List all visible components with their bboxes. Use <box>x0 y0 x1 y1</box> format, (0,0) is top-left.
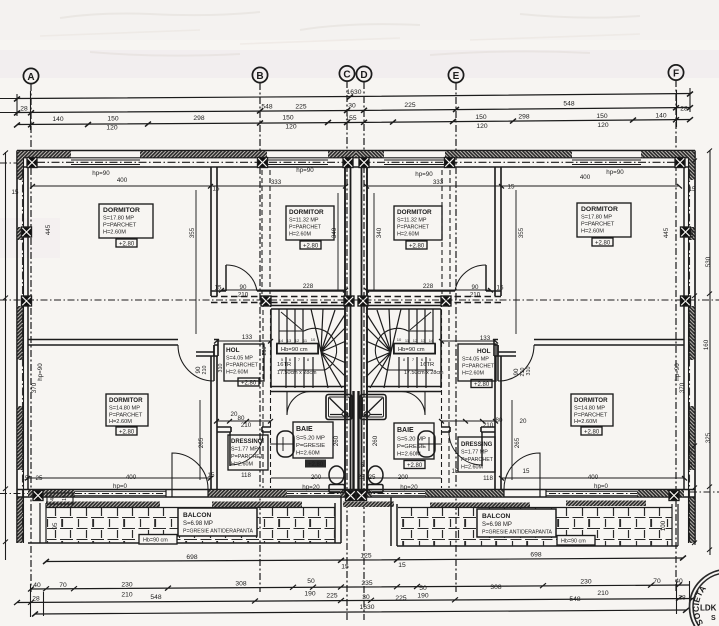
svg-text:P=PARCHET: P=PARCHET <box>574 413 608 419</box>
svg-text:+2.80: +2.80 <box>584 430 600 436</box>
svg-text:S=5.20 MP: S=5.20 MP <box>296 436 325 442</box>
svg-text:25: 25 <box>688 449 694 455</box>
svg-text:C: C <box>343 70 350 81</box>
svg-text:H=2.60M: H=2.60M <box>103 230 126 236</box>
svg-text:P=PARCHET: P=PARCHET <box>231 454 264 460</box>
svg-text:BALCON: BALCON <box>183 512 211 519</box>
svg-text:210: 210 <box>597 590 608 597</box>
svg-text:P=GRESIE ANTIDERAPANTA: P=GRESIE ANTIDERAPANTA <box>482 530 553 536</box>
svg-text:50: 50 <box>419 585 427 592</box>
svg-text:S=17.80 MP: S=17.80 MP <box>581 215 612 221</box>
svg-text:BAIE: BAIE <box>296 426 313 433</box>
svg-text:400: 400 <box>126 474 137 481</box>
svg-text:225: 225 <box>295 104 306 111</box>
svg-text:H=2.60M: H=2.60M <box>574 419 597 425</box>
svg-text:DORMITOR: DORMITOR <box>581 206 618 213</box>
svg-text:hp=20: hp=20 <box>302 484 320 491</box>
svg-text:10: 10 <box>397 337 402 342</box>
svg-text:DRESSING: DRESSING <box>231 439 263 445</box>
svg-text:133: 133 <box>480 335 491 342</box>
svg-text:1630: 1630 <box>347 89 362 96</box>
svg-text:325: 325 <box>705 432 712 443</box>
svg-text:80: 80 <box>496 417 503 424</box>
svg-text:S=1.77 MP: S=1.77 MP <box>461 450 488 456</box>
svg-text:15: 15 <box>398 562 406 569</box>
svg-text:15: 15 <box>452 468 459 475</box>
svg-text:548: 548 <box>150 594 161 601</box>
svg-text:P=GRESIE: P=GRESIE <box>397 444 426 450</box>
svg-text:225: 225 <box>326 593 337 600</box>
svg-text:+2.80: +2.80 <box>409 244 425 250</box>
svg-text:hp=90: hp=90 <box>296 167 314 174</box>
svg-text:120: 120 <box>597 122 608 129</box>
svg-text:118: 118 <box>241 472 251 479</box>
svg-text:S=6.98 MP: S=6.98 MP <box>183 521 213 527</box>
svg-text:80: 80 <box>238 415 245 422</box>
svg-text:150: 150 <box>475 114 486 121</box>
svg-text:445: 445 <box>663 227 670 238</box>
svg-text:DORMITOR: DORMITOR <box>574 397 608 404</box>
svg-text:548: 548 <box>563 101 574 108</box>
svg-text:90: 90 <box>472 284 479 291</box>
svg-text:260: 260 <box>372 435 379 446</box>
svg-text:333: 333 <box>433 179 444 186</box>
svg-text:P=GRESIE: P=GRESIE <box>296 443 325 449</box>
svg-text:308: 308 <box>490 584 501 591</box>
svg-text:530: 530 <box>705 256 712 267</box>
svg-text:S=6.98 MP: S=6.98 MP <box>482 522 512 528</box>
svg-text:400: 400 <box>588 474 599 481</box>
svg-text:P=PARCHET: P=PARCHET <box>109 413 143 419</box>
svg-text:260: 260 <box>333 435 340 446</box>
svg-text:5: 5 <box>360 462 364 469</box>
svg-text:LDK S: LDK S <box>700 604 719 613</box>
svg-text:14: 14 <box>279 338 284 343</box>
svg-text:+2.80: +2.80 <box>407 463 423 469</box>
svg-text:400: 400 <box>580 174 591 181</box>
svg-text:S=14.80 MP: S=14.80 MP <box>109 406 140 412</box>
svg-text:140: 140 <box>52 116 63 123</box>
svg-text:333: 333 <box>271 179 282 186</box>
svg-text:50: 50 <box>307 578 315 585</box>
svg-text:13: 13 <box>421 338 426 343</box>
svg-text:H=2.60M: H=2.60M <box>231 462 254 468</box>
svg-text:P=PARCHET: P=PARCHET <box>103 223 137 229</box>
svg-text:12: 12 <box>295 338 300 343</box>
svg-text:210: 210 <box>238 292 249 299</box>
svg-text:15: 15 <box>213 186 220 193</box>
svg-text:698: 698 <box>186 554 197 561</box>
svg-text:DORMITOR: DORMITOR <box>397 209 432 216</box>
svg-text:hp=90: hp=90 <box>37 363 44 381</box>
svg-text:230: 230 <box>121 581 132 588</box>
svg-text:Hb=90 cm: Hb=90 cm <box>561 539 586 545</box>
svg-text:H=2.60M: H=2.60M <box>109 419 132 425</box>
svg-text:100: 100 <box>660 520 667 531</box>
svg-text:25: 25 <box>369 474 376 481</box>
svg-text:210: 210 <box>241 422 252 429</box>
svg-text:P=PARCHET: P=PARCHET <box>289 225 322 231</box>
svg-text:H=2.60M: H=2.60M <box>296 451 320 457</box>
svg-text:13: 13 <box>287 338 292 343</box>
svg-text:+2.80: +2.80 <box>119 430 135 436</box>
svg-text:200: 200 <box>311 474 322 481</box>
svg-text:90: 90 <box>240 284 247 291</box>
svg-text:DORMITOR: DORMITOR <box>109 397 143 404</box>
svg-text:160: 160 <box>703 339 710 350</box>
svg-text:14: 14 <box>429 338 434 343</box>
svg-text:P=PARCHET: P=PARCHET <box>581 222 615 228</box>
svg-text:HOL: HOL <box>477 348 491 355</box>
svg-text:210: 210 <box>262 347 268 356</box>
svg-text:+2.80: +2.80 <box>303 244 319 250</box>
svg-text:210: 210 <box>470 292 481 299</box>
svg-text:228: 228 <box>423 283 434 290</box>
svg-text:HOL: HOL <box>226 347 240 354</box>
svg-text:DORMITOR: DORMITOR <box>103 207 140 214</box>
svg-text:15: 15 <box>497 285 504 292</box>
svg-text:DRESSING: DRESSING <box>461 442 493 448</box>
svg-text:28: 28 <box>680 106 688 113</box>
svg-text:16TR: 16TR <box>420 362 434 368</box>
svg-text:P=PARCHET: P=PARCHET <box>226 363 259 369</box>
svg-text:90: 90 <box>513 368 520 375</box>
svg-text:28: 28 <box>32 596 40 603</box>
svg-text:15: 15 <box>12 189 19 196</box>
svg-text:S=5.20 MP: S=5.20 MP <box>397 437 426 443</box>
svg-text:298: 298 <box>518 114 529 121</box>
svg-text:1630: 1630 <box>360 604 375 611</box>
svg-text:15: 15 <box>508 184 515 191</box>
svg-text:445: 445 <box>45 224 52 235</box>
svg-text:150: 150 <box>596 113 607 120</box>
svg-text:95: 95 <box>52 522 59 529</box>
svg-text:hp=90: hp=90 <box>415 171 433 178</box>
svg-text:H=2.60M: H=2.60M <box>462 371 485 377</box>
svg-text:BALCON: BALCON <box>482 513 510 520</box>
svg-text:H=2.60M: H=2.60M <box>397 452 421 458</box>
svg-text:Hb=90 cm: Hb=90 cm <box>398 347 425 353</box>
svg-text:H=2.60M: H=2.60M <box>461 465 484 471</box>
svg-text:+2.80: +2.80 <box>308 462 324 468</box>
svg-text:S=14.80 MP: S=14.80 MP <box>574 406 605 412</box>
svg-text:28: 28 <box>678 595 686 602</box>
svg-text:225: 225 <box>395 595 406 602</box>
svg-text:15: 15 <box>523 468 530 475</box>
svg-text:225: 225 <box>404 102 415 109</box>
svg-text:125: 125 <box>360 553 371 560</box>
svg-text:S=4.05 MP: S=4.05 MP <box>462 357 489 363</box>
svg-text:hp=90: hp=90 <box>92 170 110 177</box>
svg-text:120: 120 <box>285 124 296 131</box>
svg-text:H=2.60M: H=2.60M <box>226 370 249 376</box>
svg-text:70: 70 <box>653 578 661 585</box>
svg-text:F: F <box>673 69 679 80</box>
svg-text:40: 40 <box>50 495 56 501</box>
svg-text:+2.80: +2.80 <box>241 381 257 387</box>
svg-text:298: 298 <box>193 115 204 122</box>
svg-text:308: 308 <box>235 581 246 588</box>
svg-text:20: 20 <box>520 418 527 425</box>
svg-text:155: 155 <box>345 115 356 122</box>
svg-text:+2.80: +2.80 <box>119 242 135 248</box>
svg-text:S: S <box>711 615 716 622</box>
svg-text:P=PARCHET: P=PARCHET <box>397 225 430 231</box>
svg-text:200: 200 <box>398 474 409 481</box>
svg-text:370: 370 <box>679 382 686 393</box>
svg-text:120: 120 <box>106 125 117 132</box>
svg-text:Hb=90 cm: Hb=90 cm <box>281 347 308 353</box>
svg-text:340: 340 <box>331 227 338 238</box>
svg-text:H=2.60M: H=2.60M <box>289 232 312 238</box>
svg-text:228: 228 <box>303 283 314 290</box>
svg-text:265: 265 <box>514 437 521 448</box>
svg-text:S=17.80 MP: S=17.80 MP <box>103 216 134 222</box>
svg-text:15: 15 <box>341 564 349 571</box>
svg-text:698: 698 <box>530 552 541 559</box>
svg-text:25: 25 <box>358 474 365 481</box>
svg-text:10: 10 <box>311 337 316 342</box>
svg-text:370: 370 <box>31 382 38 393</box>
svg-text:30: 30 <box>348 103 356 110</box>
svg-text:40: 40 <box>33 582 41 589</box>
svg-text:S=4.05 MP: S=4.05 MP <box>226 356 253 362</box>
svg-text:310: 310 <box>218 364 224 373</box>
svg-text:hp=0: hp=0 <box>594 483 608 490</box>
svg-text:17.50cm x 28cm: 17.50cm x 28cm <box>277 370 317 376</box>
svg-text:15: 15 <box>688 462 694 468</box>
svg-text:17.50cm x 28cm: 17.50cm x 28cm <box>404 370 444 376</box>
svg-text:A: A <box>27 72 34 83</box>
svg-text:140: 140 <box>655 113 666 120</box>
svg-text:15: 15 <box>215 285 222 292</box>
svg-text:16TR: 16TR <box>277 362 291 368</box>
svg-text:210: 210 <box>121 591 132 598</box>
svg-text:15: 15 <box>208 472 215 479</box>
svg-text:B: B <box>256 71 263 82</box>
svg-text:340: 340 <box>376 227 383 238</box>
svg-text:210: 210 <box>483 422 494 429</box>
svg-text:H=2.60M: H=2.60M <box>581 229 604 235</box>
svg-text:E: E <box>453 71 460 82</box>
svg-text:P=PARCHET: P=PARCHET <box>461 457 494 463</box>
svg-text:+2.80: +2.80 <box>474 382 490 388</box>
svg-text:15: 15 <box>22 475 29 482</box>
svg-text:hp=0: hp=0 <box>113 483 127 490</box>
svg-text:P=GRESIE ANTIDERAPANTA: P=GRESIE ANTIDERAPANTA <box>183 529 254 535</box>
svg-text:+2.80: +2.80 <box>595 241 611 247</box>
svg-text:548: 548 <box>569 596 580 603</box>
svg-text:355: 355 <box>518 227 525 238</box>
svg-text:310: 310 <box>526 367 532 376</box>
svg-text:30: 30 <box>362 594 370 601</box>
svg-text:P=PARCHET: P=PARCHET <box>462 364 495 370</box>
svg-text:70: 70 <box>59 582 67 589</box>
svg-text:S=11.32 MP: S=11.32 MP <box>397 218 427 224</box>
svg-text:hp=90: hp=90 <box>674 363 681 381</box>
svg-text:118: 118 <box>483 475 493 482</box>
svg-text:90: 90 <box>195 366 202 373</box>
svg-text:150: 150 <box>282 115 293 122</box>
svg-text:25: 25 <box>36 475 43 482</box>
svg-text:S=11.32 MP: S=11.32 MP <box>289 218 319 224</box>
svg-text:15: 15 <box>62 495 68 501</box>
svg-text:S=1.77 MP: S=1.77 MP <box>231 447 258 453</box>
svg-text:230: 230 <box>580 579 591 586</box>
svg-text:190: 190 <box>304 590 315 597</box>
svg-text:150: 150 <box>107 116 118 123</box>
svg-text:400: 400 <box>117 177 128 184</box>
svg-text:548: 548 <box>261 104 272 111</box>
svg-text:BAIE: BAIE <box>397 427 414 434</box>
svg-text:D: D <box>360 70 367 81</box>
svg-text:355: 355 <box>189 227 196 238</box>
svg-text:hp=90: hp=90 <box>606 169 624 176</box>
svg-text:DORMITOR: DORMITOR <box>289 209 324 216</box>
svg-text:190: 190 <box>417 593 428 600</box>
svg-text:Hb=90 cm: Hb=90 cm <box>143 538 168 544</box>
svg-text:133: 133 <box>242 334 253 341</box>
svg-text:12: 12 <box>413 338 418 343</box>
svg-text:210: 210 <box>202 366 208 375</box>
svg-text:H=2.60M: H=2.60M <box>397 232 420 238</box>
svg-text:265: 265 <box>198 437 205 448</box>
svg-text:120: 120 <box>476 123 487 130</box>
svg-text:hp=20: hp=20 <box>400 484 418 491</box>
svg-text:28: 28 <box>20 106 28 113</box>
svg-text:235: 235 <box>361 580 372 587</box>
